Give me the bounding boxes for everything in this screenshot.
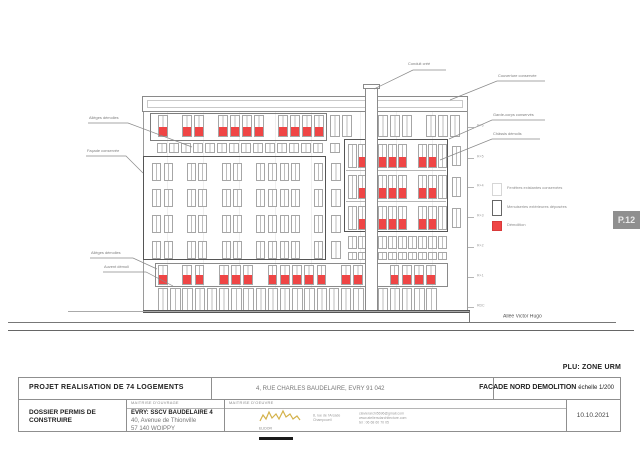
window bbox=[331, 241, 341, 259]
window-demolition bbox=[242, 115, 252, 137]
window bbox=[452, 146, 461, 166]
site-address: 4, RUE CHARLES BAUDELAIRE, EVRY 91 042 bbox=[256, 386, 385, 392]
logo-text: ELIDOR bbox=[259, 427, 280, 431]
window-demolition bbox=[428, 175, 437, 199]
window bbox=[438, 252, 447, 260]
window bbox=[198, 163, 207, 181]
window bbox=[268, 241, 277, 259]
window bbox=[398, 252, 407, 260]
window bbox=[280, 241, 289, 259]
title-block-line bbox=[211, 378, 212, 399]
window bbox=[428, 252, 437, 260]
legend-swatch-removed bbox=[492, 200, 502, 216]
window bbox=[280, 189, 289, 207]
demolition-mark bbox=[231, 127, 239, 136]
window bbox=[378, 288, 388, 311]
window bbox=[207, 288, 217, 311]
sidewalk-line bbox=[470, 322, 616, 323]
window-demolition bbox=[292, 265, 302, 285]
demolition-mark bbox=[399, 219, 406, 229]
level-tick bbox=[468, 217, 474, 218]
window bbox=[243, 288, 253, 311]
project-title: PROJET REALISATION DE 74 LOGEMENTS bbox=[29, 384, 184, 391]
demolition-mark bbox=[318, 275, 326, 284]
window bbox=[408, 236, 417, 249]
moe-contact: clavierarchi5696@gmail.com www.ateliersd… bbox=[359, 412, 406, 425]
window bbox=[256, 288, 266, 311]
demolition-mark bbox=[220, 275, 228, 284]
legend-swatch-demolition bbox=[492, 221, 502, 231]
window bbox=[331, 189, 341, 207]
window bbox=[222, 215, 231, 233]
window bbox=[169, 143, 179, 153]
window-demolition bbox=[194, 115, 204, 137]
demolition-mark bbox=[342, 275, 350, 284]
page-badge: P.12 bbox=[613, 211, 640, 229]
demolition-mark bbox=[419, 188, 426, 198]
window bbox=[378, 115, 388, 137]
demolition-mark bbox=[415, 275, 423, 284]
demolition-mark bbox=[429, 157, 436, 167]
window bbox=[438, 115, 448, 137]
window-demolition bbox=[388, 175, 397, 199]
demolition-mark bbox=[281, 275, 289, 284]
window bbox=[193, 143, 203, 153]
window bbox=[187, 215, 196, 233]
window bbox=[353, 288, 363, 311]
window-demolition bbox=[182, 265, 192, 285]
level-tick bbox=[468, 307, 474, 308]
demolition-mark bbox=[195, 127, 203, 136]
drawing-scale: échelle 1/200 bbox=[578, 385, 614, 391]
window bbox=[268, 163, 277, 181]
annotation-label: Conduit créé bbox=[408, 62, 430, 67]
window bbox=[233, 163, 242, 181]
window bbox=[301, 143, 311, 153]
window bbox=[398, 236, 407, 249]
level-marker: R+6 bbox=[477, 124, 484, 128]
street-label: Allée Victor Hugo bbox=[503, 314, 542, 319]
moe-header: MAITRISE D'OEUVRE bbox=[229, 401, 274, 406]
logo-skyline-icon bbox=[259, 409, 301, 422]
legend-label: Menuiseries extérieures déposées bbox=[507, 205, 567, 210]
window bbox=[152, 163, 161, 181]
window bbox=[280, 163, 289, 181]
window-demolition bbox=[302, 115, 312, 137]
street-line bbox=[8, 322, 470, 323]
demolition-mark bbox=[315, 127, 323, 136]
demolition-mark bbox=[219, 127, 227, 136]
demolition-mark bbox=[305, 275, 313, 284]
legend-label: Fenêtres existantes conservées bbox=[507, 186, 562, 191]
annotation-label: Châssis démolis bbox=[493, 132, 522, 137]
moa-header: MAITRISE D'OUVRAGE bbox=[131, 401, 179, 406]
chimney bbox=[365, 88, 378, 312]
window bbox=[402, 288, 412, 311]
level-marker: R+3 bbox=[477, 214, 484, 218]
legend-swatch-existing bbox=[492, 183, 502, 196]
annotation-label: Allèges démolies bbox=[91, 251, 121, 256]
window-demolition bbox=[254, 115, 264, 137]
window-demolition bbox=[402, 265, 412, 285]
window bbox=[348, 236, 357, 249]
annotation-label: Allèges démolies bbox=[89, 116, 119, 121]
window bbox=[222, 189, 231, 207]
demolition-mark bbox=[379, 188, 386, 198]
demolition-mark bbox=[303, 127, 311, 136]
moa-block: EVRY: SSCV BAUDELAIRE 4 40, Avenue de Th… bbox=[131, 410, 213, 433]
date-cell: 10.10.2021 bbox=[566, 399, 620, 432]
window bbox=[164, 215, 173, 233]
demolition-mark bbox=[419, 157, 426, 167]
window bbox=[222, 163, 231, 181]
window bbox=[198, 241, 207, 259]
window bbox=[331, 163, 341, 181]
window-demolition bbox=[158, 115, 168, 137]
window bbox=[265, 143, 275, 153]
window-demolition bbox=[398, 206, 407, 230]
moe-addr2: Champcueil bbox=[313, 418, 340, 422]
window bbox=[187, 241, 196, 259]
demolition-mark bbox=[354, 275, 362, 284]
demolition-mark bbox=[183, 275, 191, 284]
annotation-label: Auvent démoli bbox=[104, 265, 129, 270]
demolition-mark bbox=[279, 127, 287, 136]
window bbox=[219, 288, 229, 311]
window bbox=[426, 288, 436, 311]
level-marker: R+2 bbox=[477, 244, 484, 248]
window bbox=[217, 143, 227, 153]
demolition-mark bbox=[196, 275, 204, 284]
roof-band-inner bbox=[147, 100, 463, 108]
window bbox=[418, 236, 427, 249]
window bbox=[348, 144, 357, 168]
window bbox=[428, 236, 437, 249]
drawing-sheet: R+6R+5R+4R+3R+2R+1RDCConduit crééCouvert… bbox=[0, 0, 640, 452]
demolition-mark bbox=[159, 127, 167, 136]
window bbox=[348, 252, 357, 260]
window-demolition bbox=[428, 144, 437, 168]
plu-note: PLU: ZONE URM bbox=[563, 364, 621, 371]
window-demolition bbox=[268, 265, 278, 285]
window bbox=[438, 144, 447, 168]
level-tick bbox=[468, 277, 474, 278]
window bbox=[170, 288, 180, 311]
window-demolition bbox=[182, 115, 192, 137]
window bbox=[187, 163, 196, 181]
demolition-mark bbox=[291, 127, 299, 136]
demolition-mark bbox=[243, 127, 251, 136]
window bbox=[291, 215, 300, 233]
window bbox=[198, 189, 207, 207]
demolition-mark bbox=[255, 127, 263, 136]
dossier-line2: CONSTRUIRE bbox=[29, 417, 96, 425]
window bbox=[268, 189, 277, 207]
window bbox=[291, 241, 300, 259]
moe-contact3: tél : 06 68 60 70 05 bbox=[359, 421, 406, 425]
window-demolition bbox=[353, 265, 363, 285]
ground-line bbox=[68, 311, 470, 312]
window-demolition bbox=[418, 206, 427, 230]
window-demolition bbox=[218, 115, 228, 137]
drawing-title: FACADE NORD DEMOLITION échelle 1/200 bbox=[479, 384, 614, 391]
window bbox=[256, 241, 265, 259]
annotation-label: Façade conservée bbox=[87, 149, 119, 154]
window-demolition bbox=[231, 265, 241, 285]
window bbox=[158, 288, 168, 311]
window bbox=[341, 288, 351, 311]
window-demolition bbox=[195, 265, 205, 285]
window-demolition bbox=[314, 115, 324, 137]
demolition-mark bbox=[389, 219, 396, 229]
demolition-mark bbox=[183, 127, 191, 136]
demolition-mark bbox=[403, 275, 411, 284]
window bbox=[182, 288, 192, 311]
title-block-line bbox=[126, 408, 566, 409]
window bbox=[314, 241, 323, 259]
demolition-mark bbox=[389, 157, 396, 167]
level-marker: RDC bbox=[477, 304, 485, 308]
floor-line bbox=[346, 170, 446, 171]
window bbox=[414, 288, 424, 311]
window bbox=[164, 163, 173, 181]
level-marker: R+5 bbox=[477, 155, 484, 159]
window-demolition bbox=[219, 265, 229, 285]
demolition-mark bbox=[399, 157, 406, 167]
demolition-mark bbox=[399, 188, 406, 198]
level-tick bbox=[468, 247, 474, 248]
window bbox=[152, 215, 161, 233]
window bbox=[157, 143, 167, 153]
window-demolition bbox=[388, 144, 397, 168]
window-demolition bbox=[378, 175, 387, 199]
window-demolition bbox=[304, 265, 314, 285]
window-demolition bbox=[388, 206, 397, 230]
window-demolition bbox=[341, 265, 351, 285]
window bbox=[342, 115, 352, 137]
window bbox=[390, 115, 400, 137]
window bbox=[418, 252, 427, 260]
demolition-mark bbox=[419, 219, 426, 229]
window bbox=[450, 115, 460, 137]
level-marker: R+1 bbox=[477, 274, 484, 278]
window bbox=[268, 288, 278, 311]
window bbox=[314, 163, 323, 181]
window bbox=[330, 115, 340, 137]
window bbox=[233, 215, 242, 233]
demolition-mark bbox=[232, 275, 240, 284]
window bbox=[256, 189, 265, 207]
demolition-mark bbox=[391, 275, 399, 284]
window bbox=[408, 252, 417, 260]
window bbox=[187, 189, 196, 207]
window bbox=[280, 288, 290, 311]
drawing-title-main: FACADE NORD DEMOLITION bbox=[479, 384, 576, 391]
annotation-label: Couverture conservée bbox=[498, 74, 537, 79]
title-block-line bbox=[224, 399, 225, 432]
window bbox=[256, 215, 265, 233]
window bbox=[348, 175, 357, 199]
window bbox=[438, 206, 447, 230]
window-demolition bbox=[378, 144, 387, 168]
window bbox=[304, 288, 314, 311]
annotation-label: Garde-corps conservés bbox=[493, 113, 534, 118]
title-block: PROJET REALISATION DE 74 LOGEMENTS 4, RU… bbox=[18, 377, 621, 432]
demolition-mark bbox=[427, 275, 435, 284]
window bbox=[402, 115, 412, 137]
demolition-mark bbox=[379, 219, 386, 229]
window-demolition bbox=[230, 115, 240, 137]
demolition-mark bbox=[429, 219, 436, 229]
window-demolition bbox=[398, 144, 407, 168]
moa-addr1: 40, Avenue de Thionville bbox=[131, 418, 213, 426]
window bbox=[388, 252, 397, 260]
window-demolition bbox=[243, 265, 253, 285]
legend-label: Démolition bbox=[507, 223, 526, 228]
window-demolition bbox=[398, 175, 407, 199]
window bbox=[289, 143, 299, 153]
window bbox=[268, 215, 277, 233]
window-demolition bbox=[428, 206, 437, 230]
demolition-mark bbox=[429, 188, 436, 198]
window bbox=[438, 236, 447, 249]
window bbox=[317, 288, 327, 311]
window bbox=[291, 163, 300, 181]
street-line bbox=[8, 330, 634, 331]
window bbox=[256, 163, 265, 181]
window bbox=[181, 143, 191, 153]
window-demolition bbox=[414, 265, 424, 285]
floor-line bbox=[346, 201, 446, 202]
window-demolition bbox=[280, 265, 290, 285]
window bbox=[280, 215, 289, 233]
window bbox=[388, 236, 397, 249]
window bbox=[314, 189, 323, 207]
window bbox=[390, 288, 400, 311]
window-demolition bbox=[378, 206, 387, 230]
dossier-label: DOSSIER PERMIS DE CONSTRUIRE bbox=[29, 409, 96, 426]
window bbox=[229, 143, 239, 153]
chimney-cap bbox=[363, 84, 380, 89]
window bbox=[329, 288, 339, 311]
demolition-mark bbox=[244, 275, 252, 284]
demolition-mark bbox=[159, 275, 167, 284]
window bbox=[378, 252, 387, 260]
level-tick bbox=[468, 158, 474, 159]
window bbox=[452, 208, 461, 228]
logo-bar bbox=[259, 437, 293, 440]
window bbox=[253, 143, 263, 153]
window bbox=[222, 241, 231, 259]
window bbox=[233, 241, 242, 259]
window bbox=[291, 189, 300, 207]
window bbox=[348, 206, 357, 230]
level-marker: R+4 bbox=[477, 184, 484, 188]
window bbox=[198, 215, 207, 233]
window bbox=[277, 143, 287, 153]
demolition-mark bbox=[293, 275, 301, 284]
moe-address: 8, rue de l'Arcade Champcueil bbox=[313, 414, 340, 423]
window bbox=[426, 115, 436, 137]
window-demolition bbox=[317, 265, 327, 285]
level-tick bbox=[468, 187, 474, 188]
title-block-line bbox=[126, 399, 127, 432]
window bbox=[152, 189, 161, 207]
right-wall-line bbox=[467, 100, 468, 311]
window bbox=[314, 215, 323, 233]
window bbox=[241, 143, 251, 153]
window-demolition bbox=[390, 265, 400, 285]
window bbox=[438, 175, 447, 199]
window-demolition bbox=[278, 115, 288, 137]
level-tick bbox=[468, 127, 474, 128]
architect-logo: ELIDOR bbox=[259, 409, 301, 440]
window-demolition bbox=[426, 265, 436, 285]
window-demolition bbox=[418, 175, 427, 199]
window bbox=[378, 236, 387, 249]
title-block-line bbox=[19, 399, 620, 400]
window bbox=[231, 288, 241, 311]
window bbox=[164, 241, 173, 259]
demolition-mark bbox=[269, 275, 277, 284]
demolition-mark bbox=[389, 188, 396, 198]
window bbox=[233, 189, 242, 207]
window-demolition bbox=[290, 115, 300, 137]
window bbox=[330, 143, 340, 153]
window-demolition bbox=[418, 144, 427, 168]
window bbox=[331, 215, 341, 233]
window bbox=[292, 288, 302, 311]
dossier-line1: DOSSIER PERMIS DE bbox=[29, 409, 96, 417]
window bbox=[205, 143, 215, 153]
window-demolition bbox=[158, 265, 168, 285]
moa-name: EVRY: SSCV BAUDELAIRE 4 bbox=[131, 410, 213, 418]
window bbox=[452, 177, 461, 197]
window bbox=[195, 288, 205, 311]
demolition-mark bbox=[379, 157, 386, 167]
moa-addr2: 57 140 WOIPPY bbox=[131, 426, 213, 434]
window bbox=[164, 189, 173, 207]
window bbox=[313, 143, 323, 153]
window bbox=[152, 241, 161, 259]
